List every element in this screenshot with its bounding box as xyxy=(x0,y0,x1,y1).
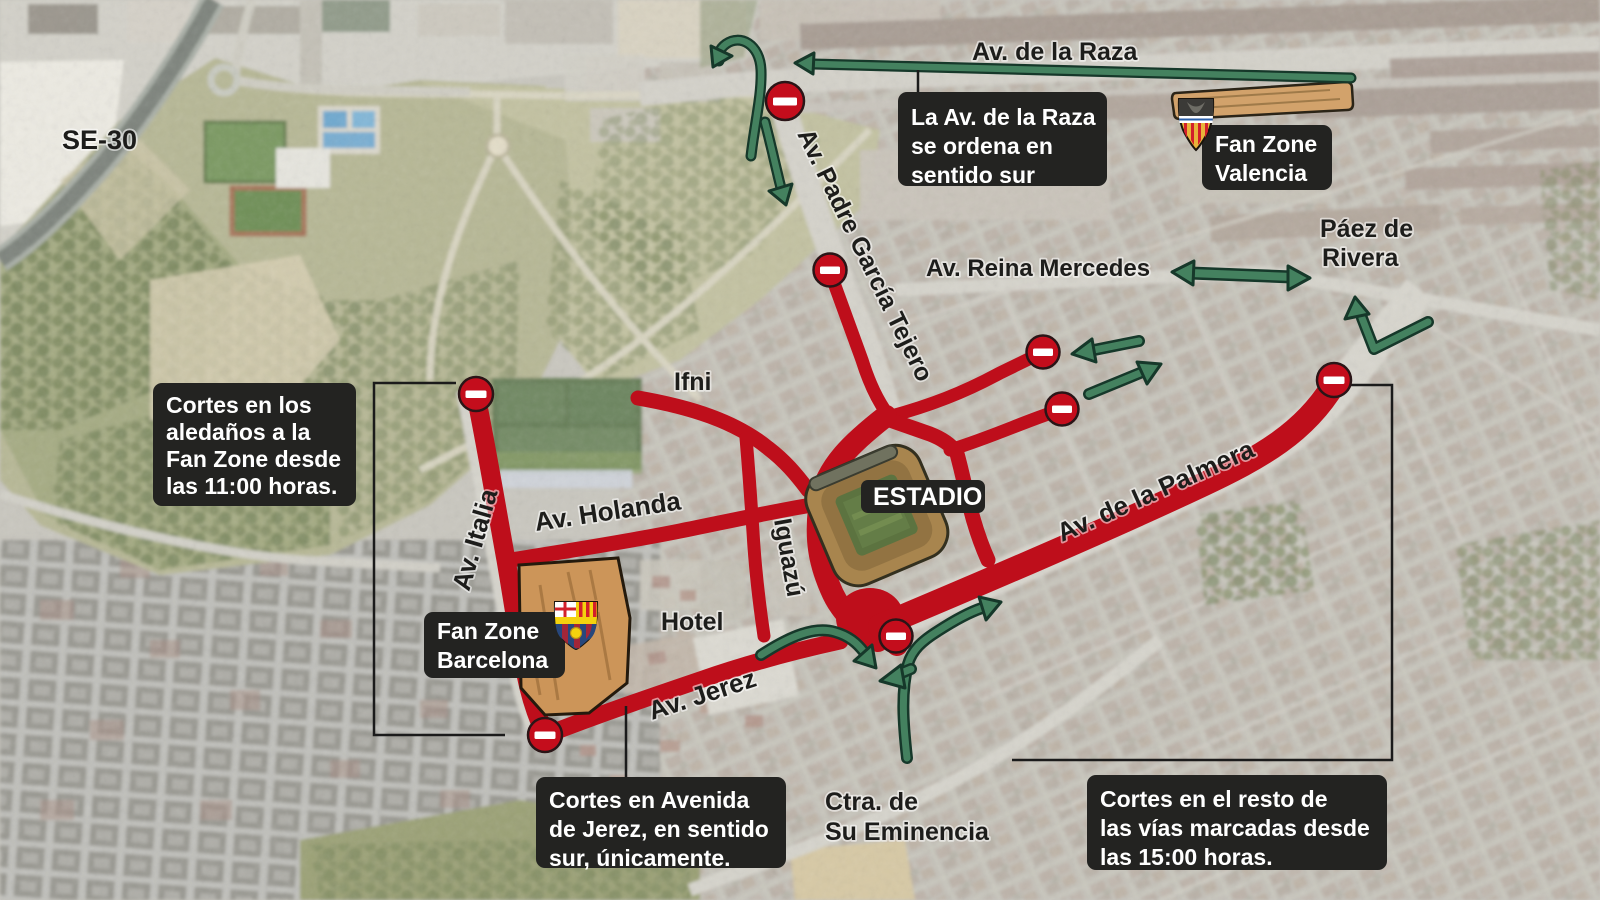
svg-text:Páez de: Páez de xyxy=(1320,215,1413,243)
svg-text:Hotel: Hotel xyxy=(661,608,724,636)
svg-text:aledaños a la: aledaños a la xyxy=(166,419,311,445)
svg-text:Rivera: Rivera xyxy=(1322,244,1400,272)
svg-text:ESTADIO: ESTADIO xyxy=(873,483,982,511)
svg-text:SE-30: SE-30 xyxy=(62,125,137,155)
svg-text:Cortes en Avenida: Cortes en Avenida xyxy=(549,787,749,813)
svg-text:sur, únicamente.: sur, únicamente. xyxy=(549,845,731,871)
svg-text:Ifni: Ifni xyxy=(674,368,712,396)
svg-text:las 11:00 horas.: las 11:00 horas. xyxy=(166,473,337,499)
svg-text:Av. de la Raza: Av. de la Raza xyxy=(972,38,1138,66)
svg-text:las vías marcadas desde: las vías marcadas desde xyxy=(1100,815,1370,841)
svg-text:Su Eminencia: Su Eminencia xyxy=(825,818,990,846)
svg-text:Fan Zone: Fan Zone xyxy=(437,618,539,644)
svg-text:Cortes en el resto de: Cortes en el resto de xyxy=(1100,786,1328,812)
svg-text:Ctra. de: Ctra. de xyxy=(825,788,918,816)
svg-text:sentido sur: sentido sur xyxy=(911,162,1035,188)
svg-text:La Av. de la Raza: La Av. de la Raza xyxy=(911,104,1096,130)
svg-text:de Jerez, en sentido: de Jerez, en sentido xyxy=(549,816,769,842)
svg-text:Av. Reina Mercedes: Av. Reina Mercedes xyxy=(926,255,1150,282)
svg-text:Fan Zone: Fan Zone xyxy=(1215,131,1317,157)
svg-text:Valencia: Valencia xyxy=(1215,160,1307,186)
svg-text:Barcelona: Barcelona xyxy=(437,647,548,673)
svg-text:las 15:00 horas.: las 15:00 horas. xyxy=(1100,844,1273,870)
svg-text:se ordena en: se ordena en xyxy=(911,133,1053,159)
svg-text:Cortes en los: Cortes en los xyxy=(166,392,312,418)
svg-text:Fan Zone desde: Fan Zone desde xyxy=(166,446,341,472)
